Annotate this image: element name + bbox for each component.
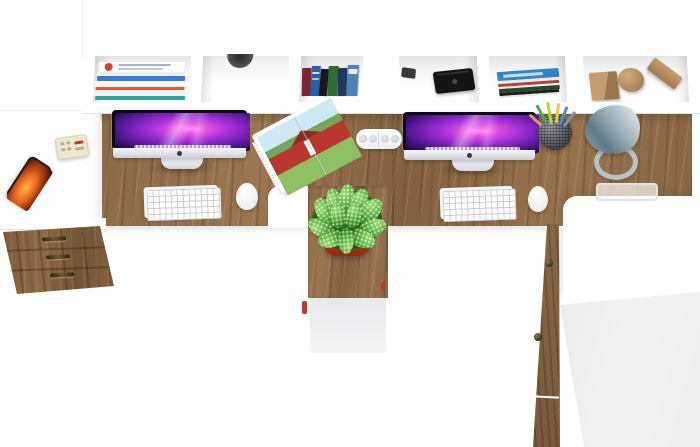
- cabinet-knob: [545, 259, 553, 267]
- gadget-button: [60, 142, 64, 146]
- gadget-button: [61, 148, 65, 152]
- book-spine-stripe: [312, 72, 319, 74]
- black-media-device: [433, 68, 476, 94]
- wood-disc: [617, 68, 644, 92]
- keyboard-left: [143, 185, 218, 219]
- brand-logo-dot: [467, 153, 472, 158]
- magazine-fold: [294, 117, 327, 176]
- drawer-finger-hole: [227, 54, 254, 68]
- monitor-wallpaper: [115, 113, 250, 151]
- magazine-layer: [95, 96, 185, 100]
- device-edge: [437, 70, 469, 75]
- book-cover-design: [503, 72, 543, 78]
- shelf-compartment-decor: [583, 56, 690, 104]
- shelf-compartment-books: [299, 56, 364, 104]
- monitor-left: [112, 110, 247, 148]
- workstation-photo: [0, 0, 700, 447]
- wood-block: [646, 57, 683, 90]
- book-stack: [497, 68, 562, 100]
- magazine-cover-line: [119, 64, 171, 66]
- monitor-right: [403, 112, 536, 150]
- keyboard-right: [439, 186, 513, 220]
- mini-gadget: [55, 134, 90, 160]
- center-pedestal-front: [310, 298, 386, 353]
- power-socket: [359, 135, 367, 143]
- drawer-unit: [0, 224, 120, 294]
- shelf-compartment-drawer: [201, 56, 290, 104]
- gadget-button: [66, 141, 70, 145]
- gadget-key: [75, 146, 84, 150]
- monitor-chin: [404, 150, 535, 160]
- document-tray: [596, 183, 658, 201]
- book-spine: [346, 65, 359, 96]
- shelf-compartment-bookstack: [489, 56, 568, 104]
- magazine-cover-line: [119, 68, 163, 70]
- mouse-left: [236, 183, 258, 210]
- magazine-cover-mark: [104, 63, 112, 71]
- drawer-handle: [46, 254, 70, 259]
- drawer-seam: [6, 266, 108, 272]
- shelf-compartment-magazines: [93, 56, 192, 104]
- keyboard-keys: [147, 188, 222, 222]
- keyboard-keys: [443, 189, 517, 223]
- drawer-seam: [6, 246, 108, 252]
- desk-seam: [392, 108, 394, 226]
- magazine-layer: [98, 62, 185, 72]
- power-strip-seam: [378, 131, 379, 147]
- shelf-compartment-device: [399, 56, 480, 104]
- device-dot: [452, 79, 458, 84]
- monitor-chin: [113, 148, 246, 158]
- small-dark-object: [401, 67, 416, 79]
- book-spine-label: [348, 69, 357, 74]
- cabinet-top-face: [563, 196, 700, 300]
- brand-logo-dot: [177, 151, 182, 156]
- wood-cube: [589, 71, 620, 101]
- gadget-red-key: [74, 140, 83, 144]
- power-socket: [391, 135, 399, 143]
- shelf-top-panel: [82, 0, 700, 58]
- cabinet-knob: [534, 333, 542, 341]
- red-accent: [381, 282, 385, 291]
- drawer-handle: [42, 236, 66, 241]
- red-accent: [302, 301, 307, 314]
- power-socket: [381, 135, 389, 143]
- book-spine-stripe: [312, 78, 319, 80]
- mouse-right: [528, 186, 548, 212]
- power-socket: [369, 135, 377, 143]
- monitor-wallpaper: [406, 115, 539, 153]
- gadget-button: [67, 147, 71, 151]
- power-strip: [356, 129, 402, 149]
- drawer-handle: [50, 272, 74, 277]
